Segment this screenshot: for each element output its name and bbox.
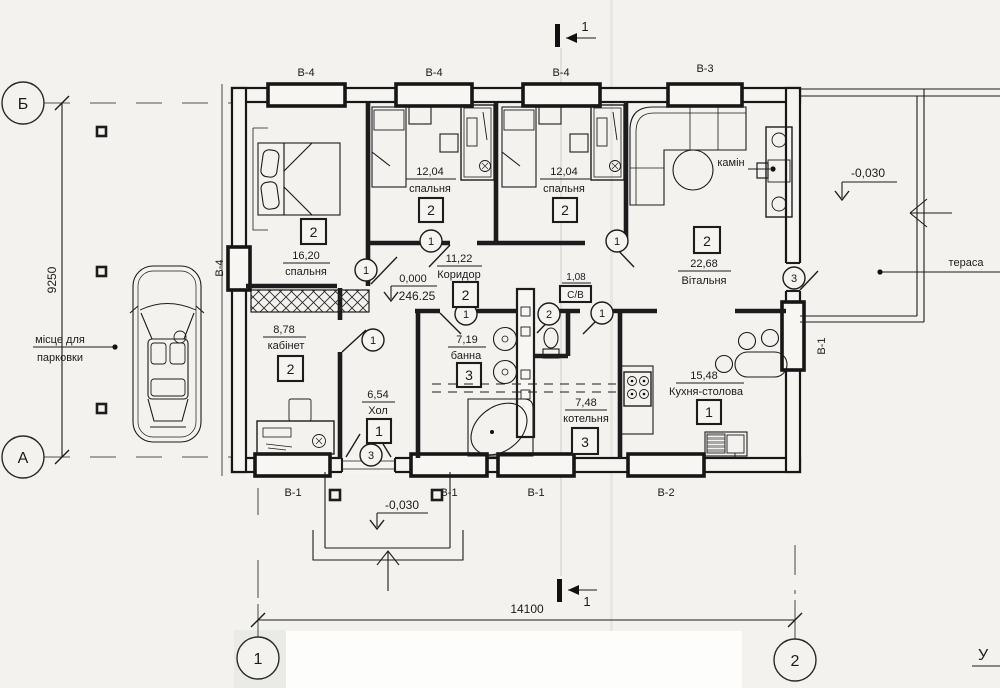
room-area: 7,48 bbox=[575, 397, 596, 409]
floor-plan-scan: 9250 14100 Б А 1 2 1 1 bbox=[0, 0, 1000, 688]
door-mark-kitchen: 1 bbox=[599, 308, 605, 320]
window-label: В-4 bbox=[297, 67, 314, 79]
room-name: Хол bbox=[368, 405, 388, 417]
room-num: 2 bbox=[310, 224, 318, 240]
living-room-furniture bbox=[630, 107, 792, 217]
room-area: 8,78 bbox=[273, 324, 294, 336]
entrance-door-leaf-left bbox=[346, 434, 360, 457]
window-top-2 bbox=[396, 84, 472, 106]
window-left bbox=[228, 247, 250, 290]
elevation-floor-absolute: 246.25 bbox=[399, 289, 436, 303]
window-label: В-2 bbox=[657, 487, 674, 499]
room-name: Кухня-столова bbox=[669, 386, 744, 398]
room-name: спальня bbox=[409, 183, 451, 195]
room-name: Коридор bbox=[437, 269, 480, 281]
room-area: 16,20 bbox=[292, 250, 320, 262]
door-mark-bedroom2: 1 bbox=[428, 236, 434, 248]
door-mark-bedroom3: 1 bbox=[614, 236, 620, 248]
room-num: 2 bbox=[427, 202, 435, 218]
chair bbox=[762, 330, 779, 347]
door-mark-bath: 1 bbox=[463, 309, 469, 321]
parking-label-line1: місце для bbox=[35, 334, 85, 346]
wardrobe-hatched bbox=[251, 290, 369, 312]
double-bed bbox=[253, 128, 340, 230]
cabinet-furniture bbox=[251, 290, 369, 454]
room-name: банна bbox=[451, 350, 482, 362]
door-mark-wc: 2 bbox=[546, 309, 552, 321]
room-area: 15,48 bbox=[690, 370, 718, 382]
room-num: 2 bbox=[561, 202, 569, 218]
porch bbox=[313, 472, 463, 591]
room-area: 12,04 bbox=[550, 166, 578, 178]
window-label-left: В-4 bbox=[214, 259, 226, 276]
window-label: В-1 bbox=[527, 487, 544, 499]
room-area: 11,22 bbox=[446, 253, 473, 265]
window-top-1 bbox=[268, 84, 345, 106]
section-tick-top bbox=[555, 24, 560, 47]
room-name: Вітальня bbox=[682, 275, 727, 287]
window-label-right: В-1 bbox=[816, 337, 828, 354]
door-mark-terrace: 3 bbox=[791, 273, 797, 285]
parking-leader-dot bbox=[112, 344, 117, 349]
chair bbox=[739, 333, 756, 350]
window-bottom-3 bbox=[498, 454, 574, 476]
room-num: 1 bbox=[705, 404, 713, 420]
porch-post bbox=[330, 490, 340, 500]
canopy-post bbox=[97, 404, 106, 413]
canopy-post bbox=[97, 127, 106, 136]
terrace-label: тераса bbox=[949, 257, 985, 269]
parking-label-line2: парковки bbox=[37, 352, 83, 364]
terrace: тераса bbox=[800, 89, 1000, 322]
window-bottom-4 bbox=[628, 454, 704, 476]
corner-mark: У bbox=[972, 647, 1000, 666]
car-top-view bbox=[130, 266, 204, 442]
elevation-terrace: -0,030 bbox=[851, 166, 885, 180]
elevation-porch: -0,030 bbox=[385, 498, 419, 512]
dining-table bbox=[735, 352, 787, 377]
dim-horizontal-label: 14100 bbox=[510, 602, 544, 616]
room-name: кабінет bbox=[268, 340, 305, 352]
room-num: 1 bbox=[375, 423, 383, 439]
room-area: 7,19 bbox=[456, 334, 477, 346]
fireplace-label: камін bbox=[717, 157, 744, 169]
room-area: 6,54 bbox=[367, 389, 388, 401]
room-num: 2 bbox=[703, 233, 711, 249]
window-label: В-4 bbox=[552, 67, 569, 79]
chair bbox=[716, 356, 733, 373]
dim-vertical-label: 9250 bbox=[45, 266, 59, 293]
room-area: 22,68 bbox=[690, 258, 718, 270]
room-num: 3 bbox=[465, 367, 473, 383]
section-label-bottom: 1 bbox=[583, 594, 590, 609]
window-top-4 bbox=[668, 84, 742, 106]
room-num: 2 bbox=[462, 287, 470, 303]
canopy-post bbox=[97, 267, 106, 276]
axis-number-1: 1 bbox=[254, 651, 263, 668]
room-name: С/В bbox=[567, 290, 584, 301]
plumbing-chase bbox=[517, 289, 534, 437]
room-name: спальня bbox=[543, 183, 585, 195]
section-tick-bottom bbox=[557, 579, 562, 602]
page-edge-white bbox=[283, 631, 742, 688]
terrace-leader-dot bbox=[877, 269, 882, 274]
window-bottom-1 bbox=[255, 454, 330, 476]
window-top-3 bbox=[523, 84, 600, 106]
axis-number-2: 2 bbox=[791, 653, 800, 670]
window-label: В-1 bbox=[284, 487, 301, 499]
washbasin bbox=[494, 361, 517, 384]
room-name: котельня bbox=[563, 413, 609, 425]
axis-letter-B: Б bbox=[18, 96, 29, 113]
room-name: спальня bbox=[285, 266, 327, 278]
door-mark-cabinet: 1 bbox=[370, 335, 376, 347]
window-label: В-3 bbox=[696, 63, 713, 75]
door-mark-bedroom1: 1 bbox=[363, 265, 369, 277]
window-label: В-4 bbox=[425, 67, 442, 79]
window-bottom-2 bbox=[411, 454, 487, 476]
axis-letter-A: А bbox=[18, 450, 29, 467]
floor-plan-drawing: 9250 14100 Б А 1 2 1 1 bbox=[0, 0, 1000, 688]
room-area: 1,08 bbox=[566, 272, 586, 283]
elevation-floor-relative: 0,000 bbox=[399, 273, 427, 285]
section-label-top: 1 bbox=[581, 19, 588, 34]
washbasin bbox=[494, 328, 517, 351]
room-num: 2 bbox=[287, 361, 295, 377]
room-num: 3 bbox=[581, 434, 589, 450]
door-mark-entrance: 3 bbox=[368, 450, 374, 462]
room-area: 12,04 bbox=[416, 166, 444, 178]
corner-mark-letter: У bbox=[978, 647, 989, 664]
